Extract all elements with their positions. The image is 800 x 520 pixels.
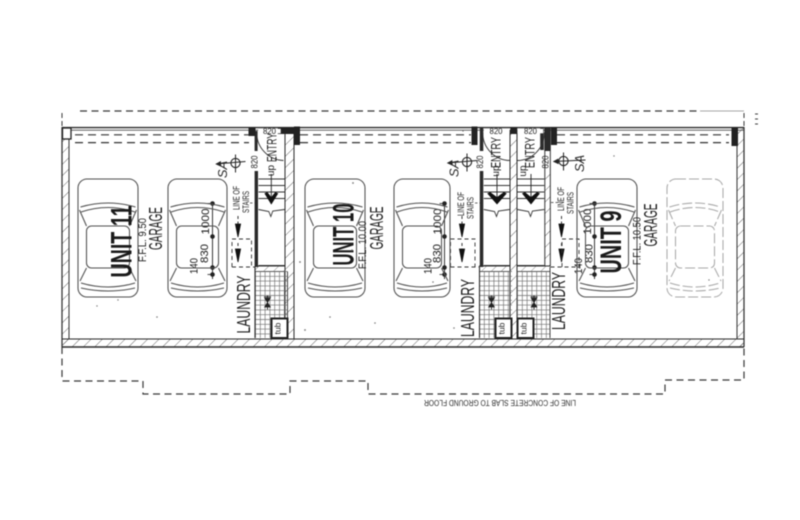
svg-text:820: 820 <box>475 156 485 169</box>
svg-text:820: 820 <box>250 156 260 169</box>
svg-text:up: up <box>518 165 529 177</box>
svg-text:UNIT 9: UNIT 9 <box>595 211 628 274</box>
svg-text:820: 820 <box>490 127 504 136</box>
svg-text:SA: SA <box>572 155 587 172</box>
svg-text:tub: tub <box>519 322 529 334</box>
svg-text:GARAGE: GARAGE <box>641 204 661 247</box>
svg-text:SA: SA <box>447 160 462 177</box>
svg-text:820: 820 <box>541 156 551 169</box>
svg-text:1000: 1000 <box>432 209 444 235</box>
svg-text:UNIT 10: UNIT 10 <box>327 204 360 266</box>
svg-text:STAIRS: STAIRS <box>241 191 252 213</box>
svg-text:ENTRY: ENTRY <box>522 137 538 168</box>
svg-text:UNIT 11: UNIT 11 <box>105 206 138 278</box>
svg-text:STAIRS: STAIRS <box>466 197 477 219</box>
svg-text:ENTRY: ENTRY <box>264 133 280 162</box>
svg-text:140: 140 <box>422 258 434 274</box>
svg-text:tub: tub <box>273 322 283 334</box>
svg-text:140: 140 <box>188 258 200 274</box>
svg-text:LINE OF CONCRETE SLAB TO GROUN: LINE OF CONCRETE SLAB TO GROUND FLOOR <box>424 398 576 408</box>
svg-text:820: 820 <box>524 127 538 136</box>
svg-text:GARAGE: GARAGE <box>146 207 166 250</box>
svg-text:SA: SA <box>215 161 230 178</box>
svg-text:LAUNDRY: LAUNDRY <box>458 279 478 337</box>
svg-text:STAIRS: STAIRS <box>566 192 577 214</box>
svg-text:830: 830 <box>199 244 211 263</box>
svg-text:1000: 1000 <box>200 209 212 235</box>
svg-text:GARAGE: GARAGE <box>367 207 387 250</box>
svg-text:tub: tub <box>497 322 507 334</box>
svg-text:LAUNDRY: LAUNDRY <box>234 276 254 334</box>
svg-text:up: up <box>491 165 502 177</box>
svg-text:ENTRY: ENTRY <box>488 137 504 168</box>
svg-text:LAUNDRY: LAUNDRY <box>549 272 569 330</box>
